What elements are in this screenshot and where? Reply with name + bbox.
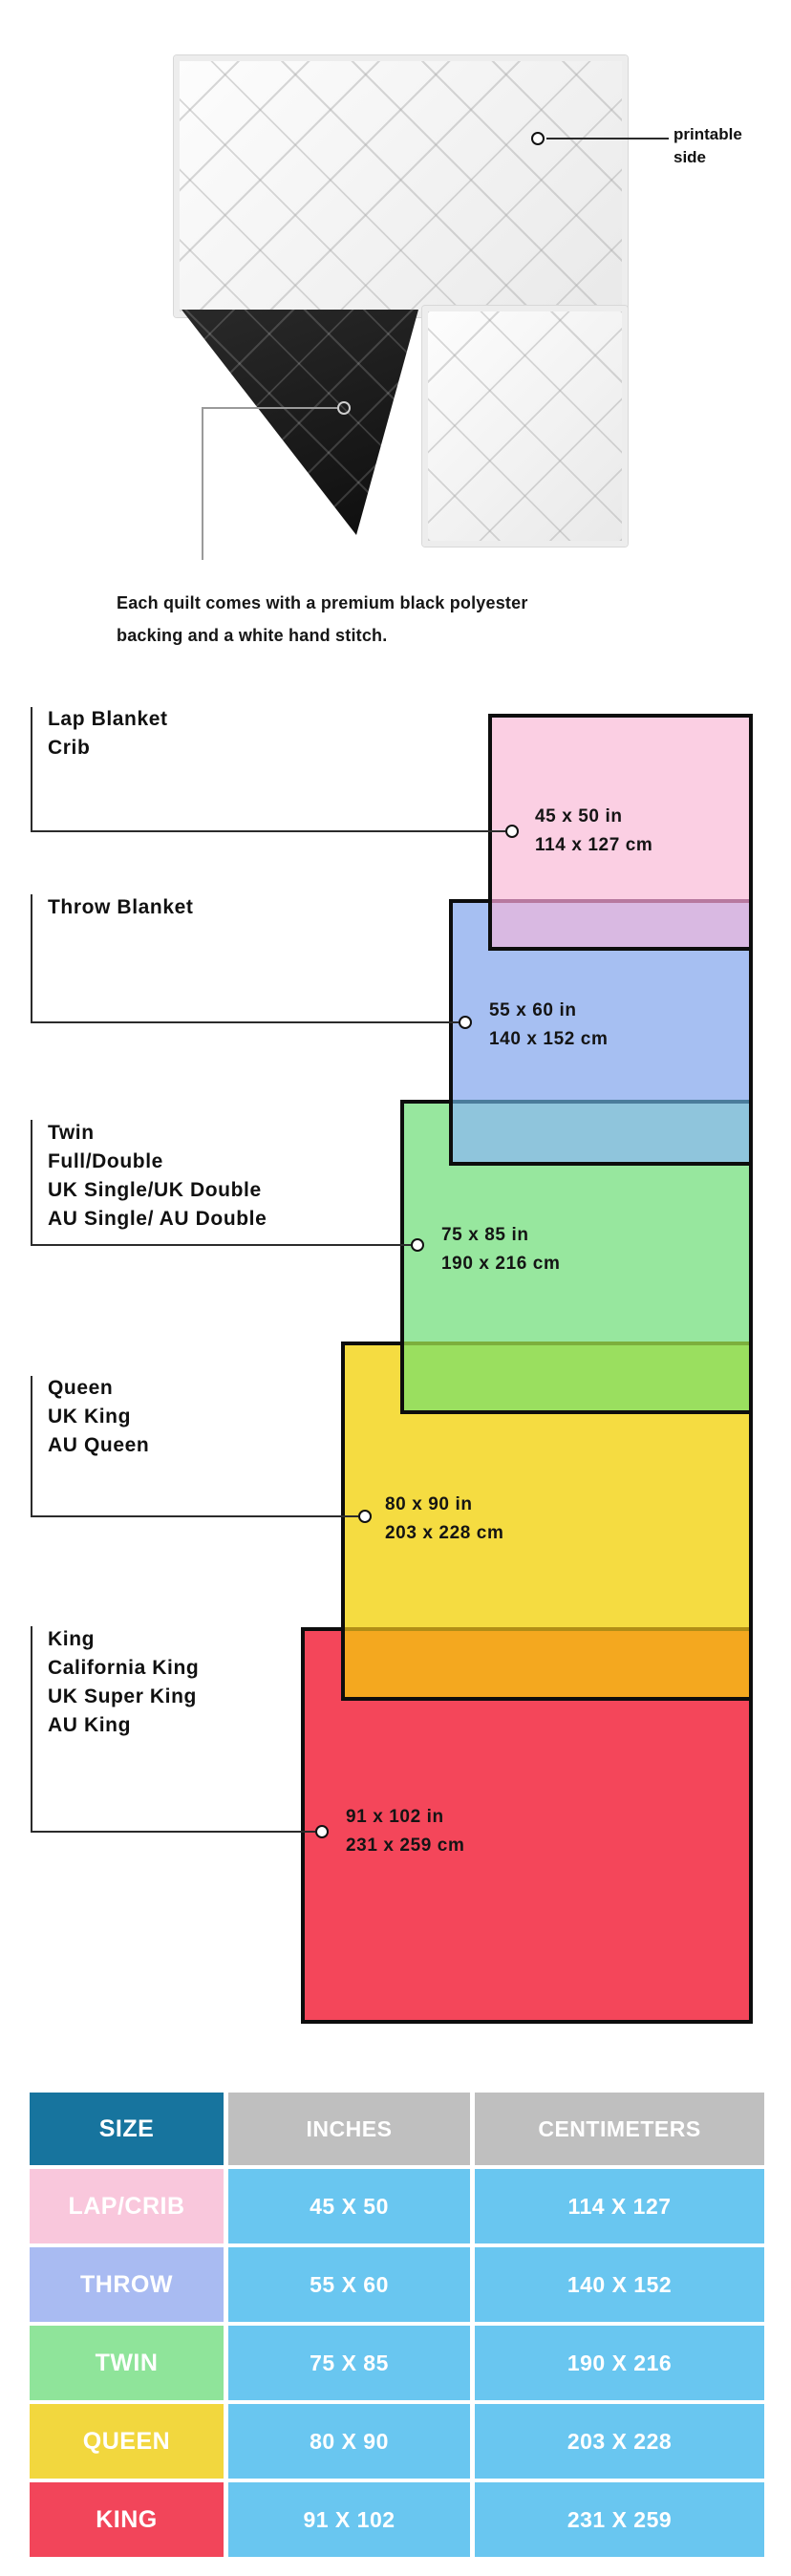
quilt-caption: Each quilt comes with a premium black po… [117,587,709,652]
table-header-inches: INCHES [228,2093,470,2165]
lap-marker-icon [505,825,519,838]
label-line: Full/Double [48,1148,267,1176]
table-row-throw-size: THROW [30,2247,224,2322]
queen-dimensions: 80 x 90 in 203 x 228 cm [385,1491,503,1548]
black-backing-leader-line-v [202,407,203,560]
dim-cm: 231 x 259 cm [346,1832,464,1860]
table-row-king-cm: 231 X 259 [475,2482,764,2557]
overlap-lap-throw [492,903,749,947]
lap-tick-line [31,707,32,831]
label-line: Throw Blanket [48,893,193,922]
table-row-queen-size: QUEEN [30,2404,224,2479]
label-line: Lap Blanket [48,705,168,734]
covered-border-king-top [345,1627,749,1631]
covered-border-throw-top [492,899,749,903]
dim-inches: 55 x 60 in [489,997,608,1025]
table-header-size: SIZE [30,2093,224,2165]
table-row-twin-inches: 75 X 85 [228,2326,470,2400]
king-tick-line [31,1626,32,1832]
queen-marker-icon [358,1510,372,1523]
covered-border-queen-top [404,1342,749,1345]
table-row-throw-inches: 55 X 60 [228,2247,470,2322]
black-backing-leader-line-h [202,407,337,409]
caption-line-1: Each quilt comes with a premium black po… [117,587,709,619]
king-dimensions: 91 x 102 in 231 x 259 cm [346,1803,464,1860]
table-row-throw-cm: 140 X 152 [475,2247,764,2322]
dim-inches: 91 x 102 in [346,1803,464,1832]
lap-group-label: Lap Blanket Crib [48,705,168,762]
dim-inches: 75 x 85 in [441,1221,560,1250]
label-line: Queen [48,1374,149,1403]
label-line: AU Queen [48,1431,149,1460]
label-line: Crib [48,734,168,762]
throw-group-label: Throw Blanket [48,893,193,922]
printable-side-label: printable side [673,123,742,169]
table-row-lap-inches: 45 X 50 [228,2169,470,2243]
table-row-queen-cm: 203 X 228 [475,2404,764,2479]
label-line: California King [48,1654,199,1683]
quilt-printable-side-image-lower [422,306,628,547]
table-header-centimeters: CENTIMETERS [475,2093,764,2165]
quilt-printable-side-image [174,55,628,317]
quilt-black-backing-fold [174,308,424,537]
label-line: UK King [48,1403,149,1431]
dim-inches: 80 x 90 in [385,1491,503,1519]
label-line: UK Super King [48,1683,199,1711]
label-line: Twin [48,1119,267,1148]
throw-dimensions: 55 x 60 in 140 x 152 cm [489,997,608,1054]
dim-inches: 45 x 50 in [535,803,652,831]
queen-group-label: Queen UK King AU Queen [48,1374,149,1460]
label-line: King [48,1625,199,1654]
printable-side-marker-icon [531,132,545,145]
throw-leader-line [31,1021,459,1023]
black-backing-marker-icon [337,401,351,415]
covered-border-twin-top [453,1100,749,1104]
dim-cm: 190 x 216 cm [441,1250,560,1278]
table-row-lap-cm: 114 X 127 [475,2169,764,2243]
queen-leader-line [31,1515,358,1517]
label-line: AU King [48,1711,199,1740]
dim-cm: 140 x 152 cm [489,1025,608,1054]
twin-dimensions: 75 x 85 in 190 x 216 cm [441,1221,560,1278]
throw-tick-line [31,894,32,1022]
twin-leader-line [31,1244,411,1246]
table-row-king-inches: 91 X 102 [228,2482,470,2557]
overlap-queen-king [345,1631,749,1697]
dim-cm: 114 x 127 cm [535,831,652,860]
king-leader-line [31,1831,315,1833]
label-line: AU Single/ AU Double [48,1205,267,1234]
king-group-label: King California King UK Super King AU Ki… [48,1625,199,1740]
twin-tick-line [31,1120,32,1245]
twin-group-label: Twin Full/Double UK Single/UK Double AU … [48,1119,267,1234]
table-row-twin-size: TWIN [30,2326,224,2400]
dim-cm: 203 x 228 cm [385,1519,503,1548]
table-row-twin-cm: 190 X 216 [475,2326,764,2400]
overlap-throw-twin [453,1104,749,1162]
overlap-twin-queen [404,1345,749,1410]
queen-tick-line [31,1376,32,1516]
table-row-queen-inches: 80 X 90 [228,2404,470,2479]
lap-dimensions: 45 x 50 in 114 x 127 cm [535,803,652,860]
table-row-king-size: KING [30,2482,224,2557]
king-marker-icon [315,1825,329,1838]
lap-leader-line [31,830,505,832]
table-row-lap-size: LAP/CRIB [30,2169,224,2243]
printable-side-leader-line [546,138,669,140]
quilt-size-guide-page: printable side Each quilt comes with a p… [0,0,791,2576]
throw-marker-icon [459,1016,472,1029]
caption-line-2: backing and a white hand stitch. [117,619,709,652]
label-line: UK Single/UK Double [48,1176,267,1205]
twin-marker-icon [411,1238,424,1252]
